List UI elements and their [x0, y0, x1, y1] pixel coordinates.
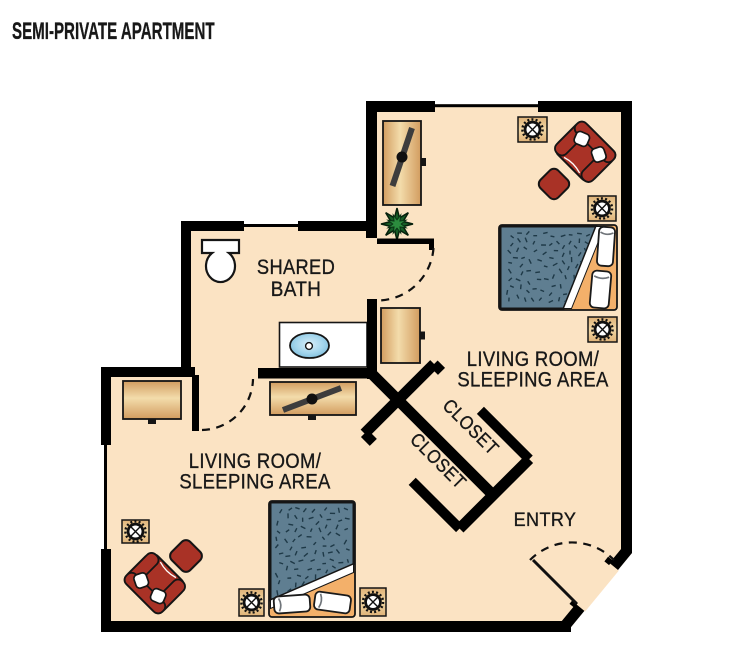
svg-text:SLEEPING AREA: SLEEPING AREA: [179, 470, 331, 493]
svg-text:SHARED: SHARED: [257, 256, 335, 279]
svg-text:ENTRY: ENTRY: [514, 509, 577, 531]
svg-text:SLEEPING AREA: SLEEPING AREA: [457, 368, 609, 391]
svg-text:SEMI-PRIVATE APARTMENT: SEMI-PRIVATE APARTMENT: [12, 19, 215, 45]
svg-text:BATH: BATH: [271, 278, 321, 301]
